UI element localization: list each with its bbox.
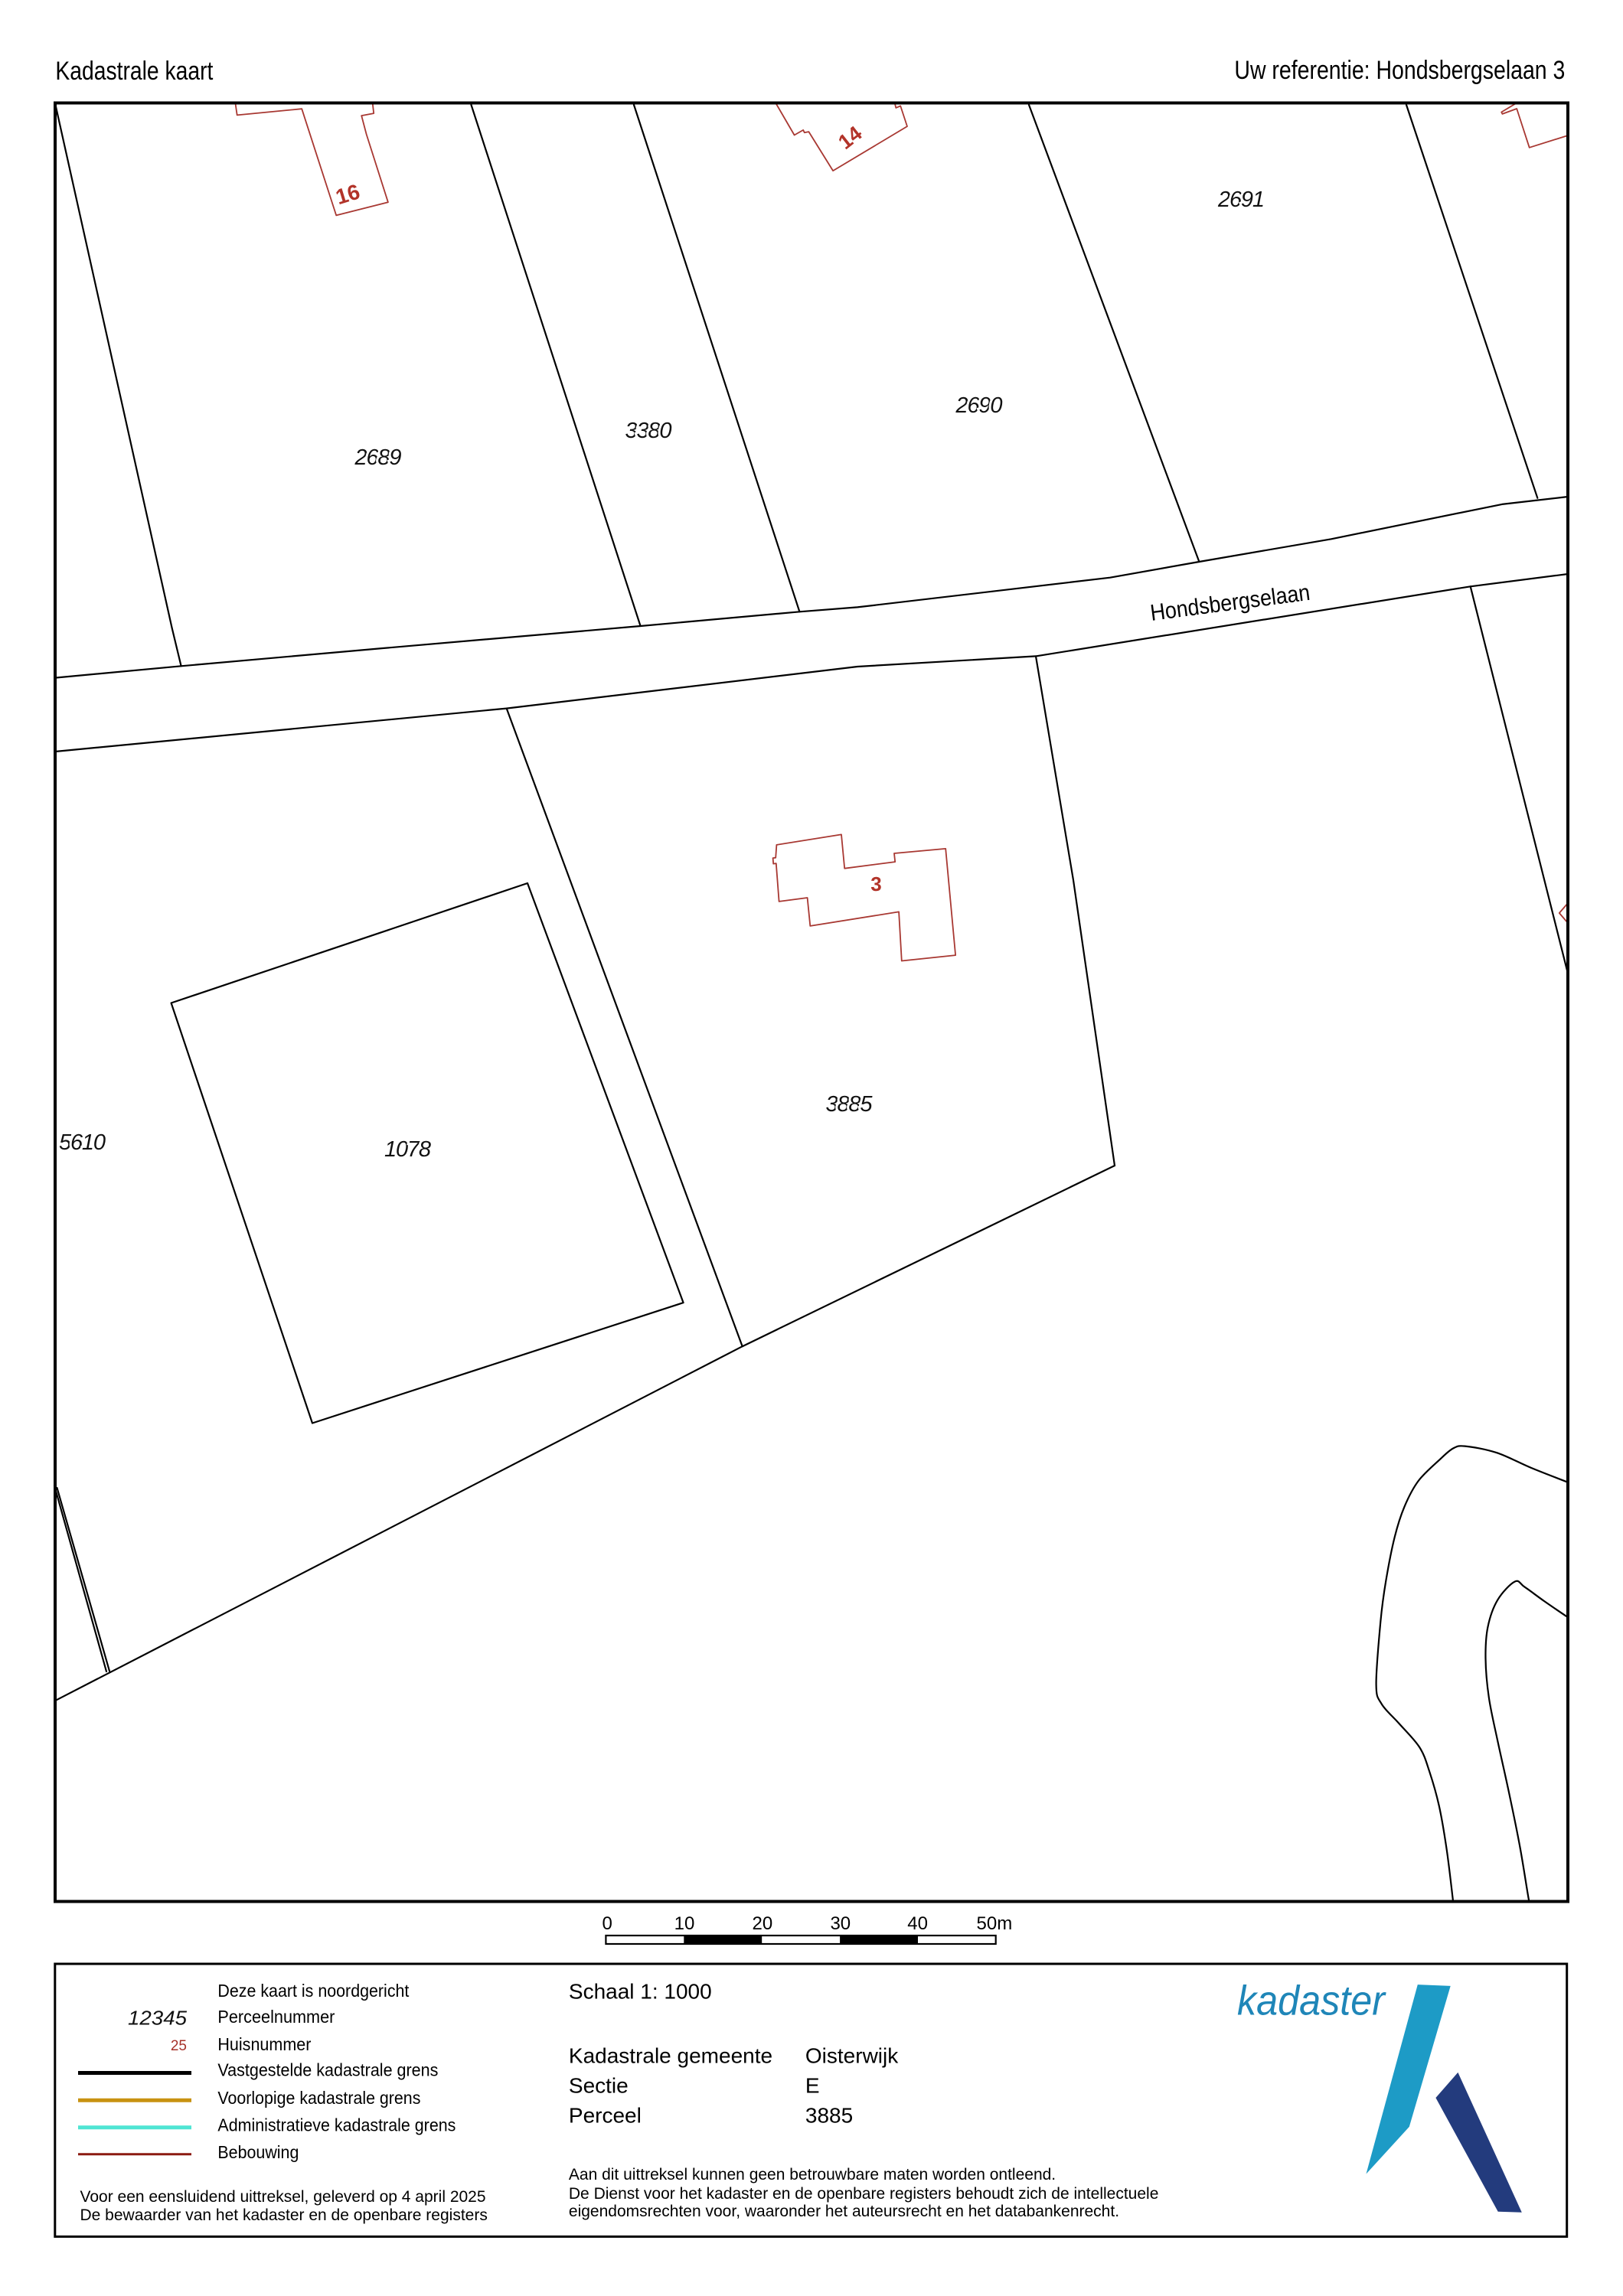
svg-text:Sectie: Sectie bbox=[569, 2073, 629, 2097]
svg-text:3885: 3885 bbox=[805, 2103, 853, 2127]
svg-text:2690: 2690 bbox=[955, 393, 1003, 418]
svg-text:Schaal 1: 1000: Schaal 1: 1000 bbox=[569, 1979, 712, 2003]
svg-text:Kadastrale gemeente: Kadastrale gemeente bbox=[569, 2043, 772, 2067]
svg-text:2689: 2689 bbox=[354, 445, 402, 470]
svg-text:1078: 1078 bbox=[384, 1137, 431, 1162]
svg-text:20: 20 bbox=[753, 1913, 773, 1934]
svg-text:10: 10 bbox=[674, 1913, 695, 1934]
svg-text:Aan dit uittreksel kunnen geen: Aan dit uittreksel kunnen geen betrouwba… bbox=[569, 2166, 1056, 2183]
svg-text:0: 0 bbox=[603, 1913, 612, 1934]
svg-text:Huisnummer: Huisnummer bbox=[217, 2034, 311, 2054]
svg-text:Kadastrale kaart: Kadastrale kaart bbox=[55, 57, 213, 86]
svg-text:50m: 50m bbox=[977, 1913, 1013, 1934]
svg-text:12345: 12345 bbox=[128, 2007, 188, 2030]
svg-text:kadaster: kadaster bbox=[1237, 1977, 1386, 2024]
svg-text:Uw referentie: Hondsbergselaan: Uw referentie: Hondsbergselaan 3 bbox=[1234, 56, 1565, 85]
svg-text:25: 25 bbox=[171, 2038, 187, 2054]
svg-text:3: 3 bbox=[870, 872, 881, 895]
svg-text:30: 30 bbox=[830, 1913, 851, 1934]
svg-text:40: 40 bbox=[907, 1913, 928, 1934]
svg-text:E: E bbox=[805, 2073, 820, 2097]
svg-text:3885: 3885 bbox=[826, 1092, 874, 1117]
svg-text:Vastgestelde kadastrale grens: Vastgestelde kadastrale grens bbox=[217, 2060, 438, 2080]
svg-text:Perceel: Perceel bbox=[569, 2103, 642, 2127]
svg-text:5610: 5610 bbox=[59, 1130, 106, 1155]
svg-text:eigendomsrechten voor, waarond: eigendomsrechten voor, waaronder het aut… bbox=[569, 2203, 1119, 2220]
svg-text:3380: 3380 bbox=[625, 419, 672, 443]
svg-text:Voorlopige kadastrale grens: Voorlopige kadastrale grens bbox=[217, 2088, 420, 2108]
svg-text:Bebouwing: Bebouwing bbox=[217, 2142, 299, 2162]
svg-text:De Dienst voor het kadaster en: De Dienst voor het kadaster en de openba… bbox=[569, 2185, 1158, 2203]
svg-text:Administratieve kadastrale gre: Administratieve kadastrale grens bbox=[217, 2115, 456, 2135]
svg-text:Voor een eensluidend uittrekse: Voor een eensluidend uittreksel, gelever… bbox=[80, 2188, 486, 2206]
svg-text:De bewaarder van het kadaster: De bewaarder van het kadaster en de open… bbox=[80, 2206, 488, 2224]
svg-text:2691: 2691 bbox=[1217, 188, 1265, 212]
svg-text:Oisterwijk: Oisterwijk bbox=[805, 2043, 899, 2067]
svg-text:Perceelnummer: Perceelnummer bbox=[217, 2007, 335, 2027]
svg-text:Deze kaart is noordgericht: Deze kaart is noordgericht bbox=[217, 1981, 410, 2001]
